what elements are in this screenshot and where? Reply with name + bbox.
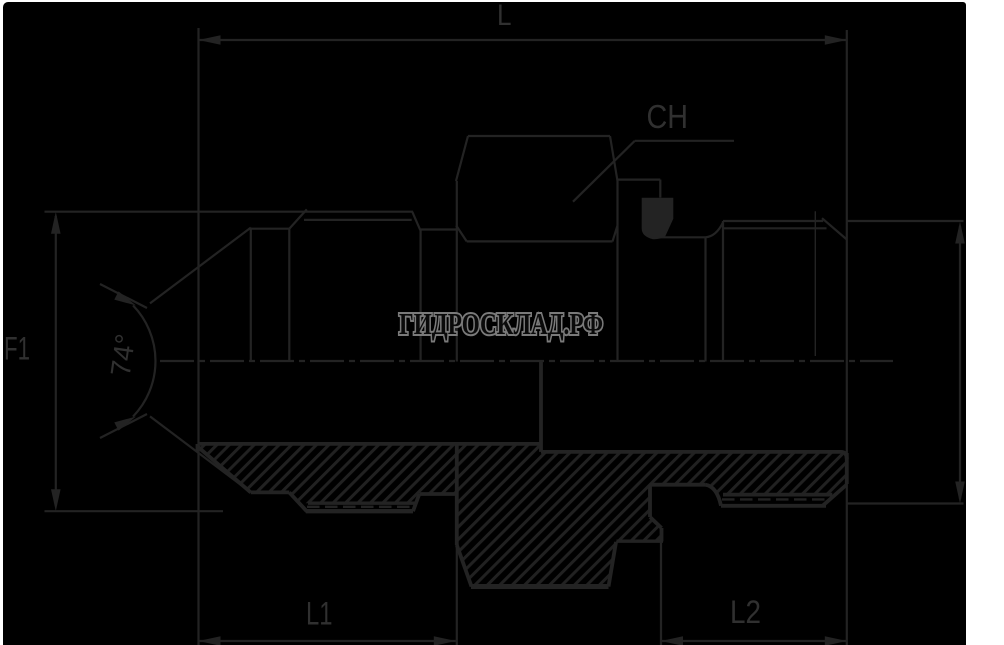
svg-text:F1: F1 <box>4 331 30 367</box>
svg-text:74°: 74° <box>105 332 142 378</box>
svg-text:ГИДРОСКЛАД.РФ: ГИДРОСКЛАД.РФ <box>399 306 603 341</box>
svg-text:L1: L1 <box>306 596 333 632</box>
svg-text:L2: L2 <box>730 594 761 630</box>
svg-text:CH: CH <box>647 98 689 135</box>
svg-text:L: L <box>497 0 512 32</box>
